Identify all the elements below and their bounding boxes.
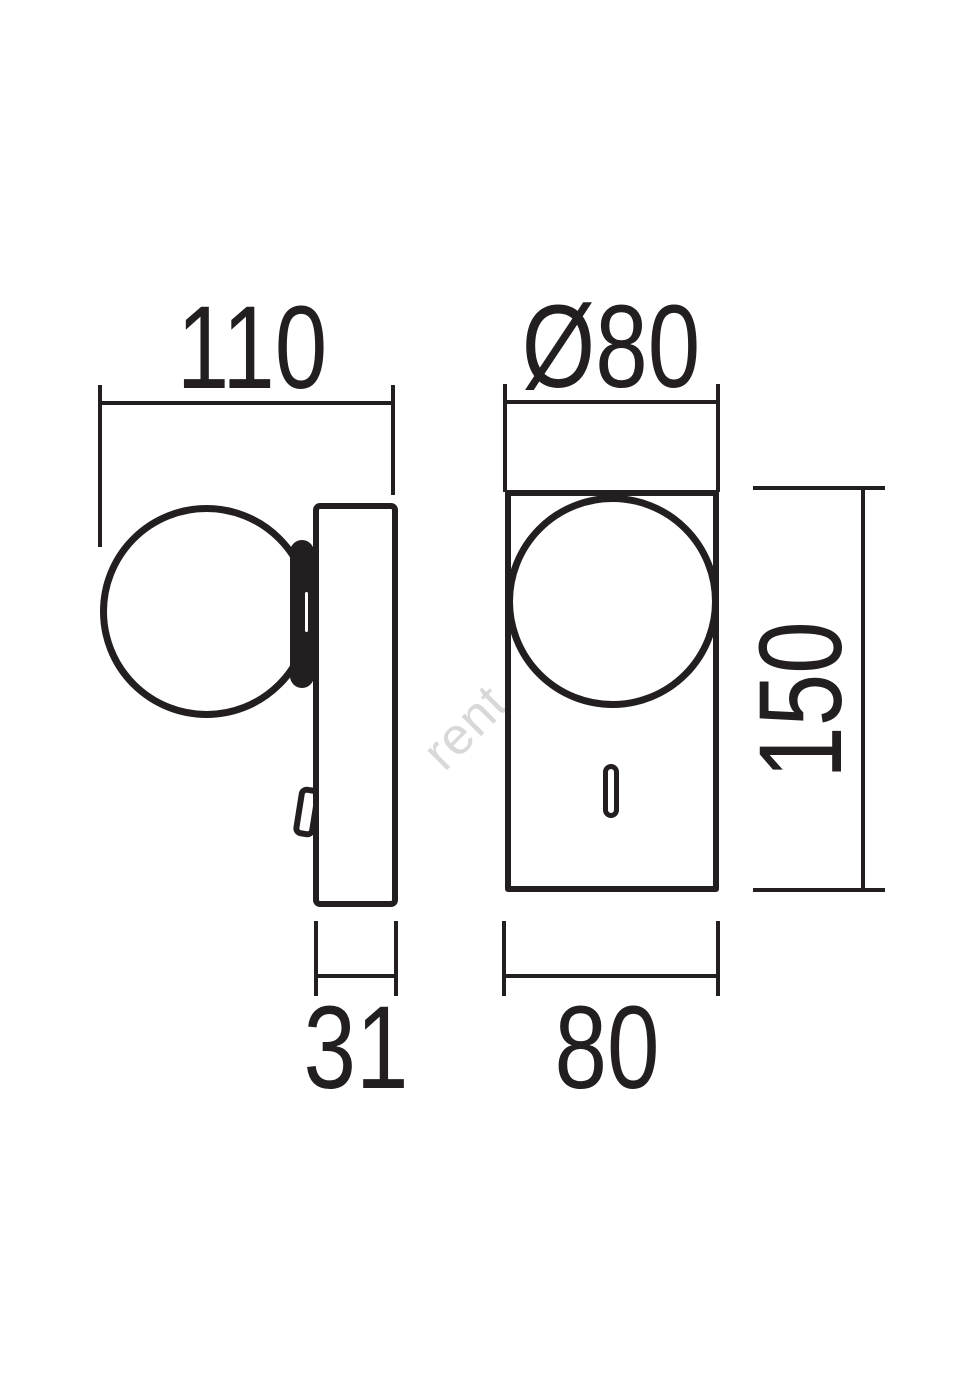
technical-drawing-canvas: rent.cz 110 Ø80 150 <box>0 0 980 1400</box>
dim-label-80: 80 <box>554 989 659 1107</box>
dim-line-80 <box>502 974 720 978</box>
ext-line-80-right <box>716 921 720 996</box>
dimension-80: 80 <box>0 0 980 1400</box>
ext-line-80-left <box>502 921 506 996</box>
